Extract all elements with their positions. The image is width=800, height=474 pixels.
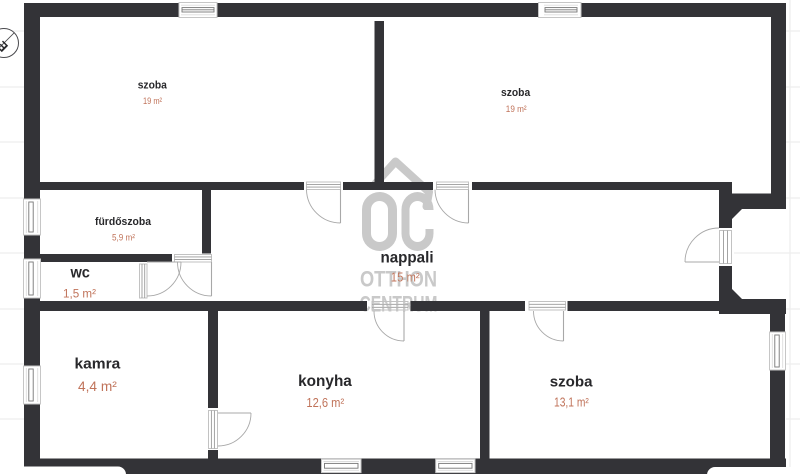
svg-text:kamra: kamra bbox=[75, 356, 121, 373]
svg-text:5,9 m²: 5,9 m² bbox=[112, 232, 136, 243]
svg-text:szoba: szoba bbox=[550, 373, 593, 390]
svg-text:13,1 m²: 13,1 m² bbox=[554, 395, 589, 409]
svg-text:szoba: szoba bbox=[138, 80, 168, 92]
svg-text:OTTHON: OTTHON bbox=[360, 267, 437, 292]
svg-text:4,4 m²: 4,4 m² bbox=[78, 379, 117, 394]
svg-text:19 m²: 19 m² bbox=[506, 104, 527, 114]
svg-text:nappali: nappali bbox=[380, 249, 433, 266]
svg-text:12,6 m²: 12,6 m² bbox=[306, 395, 344, 410]
svg-text:fürdőszoba: fürdőszoba bbox=[95, 216, 151, 228]
svg-text:19 m²: 19 m² bbox=[143, 96, 162, 106]
svg-text:wc: wc bbox=[70, 265, 91, 282]
svg-text:szoba: szoba bbox=[501, 87, 531, 99]
svg-text:konyha: konyha bbox=[298, 373, 352, 390]
svg-text:1,5 m²: 1,5 m² bbox=[63, 286, 96, 300]
svg-text:CENTRUM: CENTRUM bbox=[360, 292, 438, 317]
